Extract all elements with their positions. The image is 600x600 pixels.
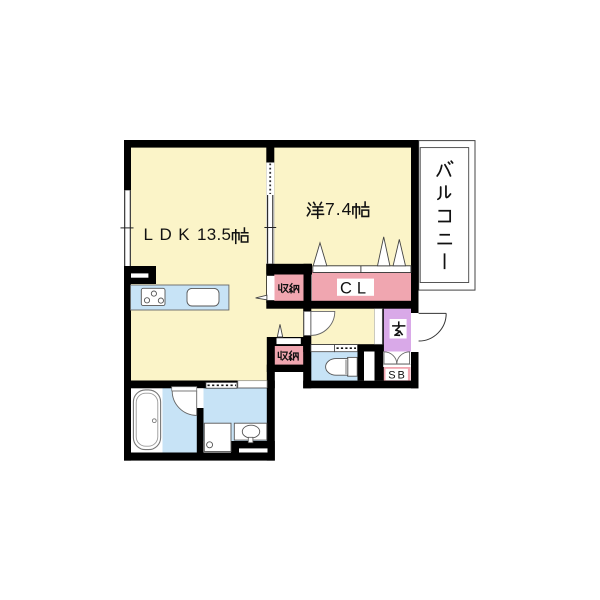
- svg-text:13.5: 13.5: [197, 225, 231, 244]
- svg-text:SB: SB: [388, 370, 407, 382]
- svg-text:CL: CL: [340, 280, 371, 298]
- svg-text:7.4: 7.4: [325, 199, 352, 219]
- svg-text:LDK: LDK: [144, 225, 197, 244]
